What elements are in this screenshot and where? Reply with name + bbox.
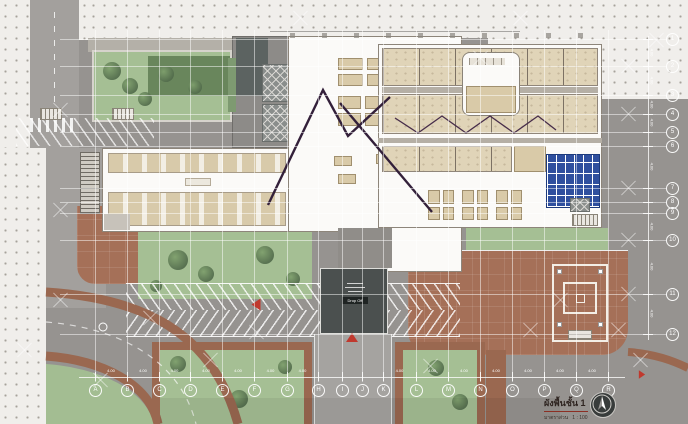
plan-title: ผังพื้นชั้น 1	[544, 396, 588, 412]
floor-plan-canvas: Drop Off A4.00B4.00C4.00D4.00E4.00F4.00G…	[0, 0, 688, 424]
linework-overlay	[0, 0, 688, 424]
section-line	[268, 90, 390, 205]
dimension-line-right	[648, 36, 649, 340]
north-arrow-icon	[590, 392, 616, 418]
road-shade	[160, 398, 560, 424]
title-block: ผังพื้นชั้น 1 มาตราส่วน 1 : 100	[544, 396, 588, 422]
curb-arc	[628, 352, 688, 368]
dimension-line-bottom	[79, 377, 625, 378]
survey-point	[99, 323, 107, 331]
scale-value: 1 : 100	[572, 415, 587, 421]
scale-label: มาตราส่วน	[544, 415, 568, 421]
section-line	[340, 103, 432, 212]
roof-fold-line	[395, 116, 556, 133]
dimension-line-top	[270, 31, 520, 32]
